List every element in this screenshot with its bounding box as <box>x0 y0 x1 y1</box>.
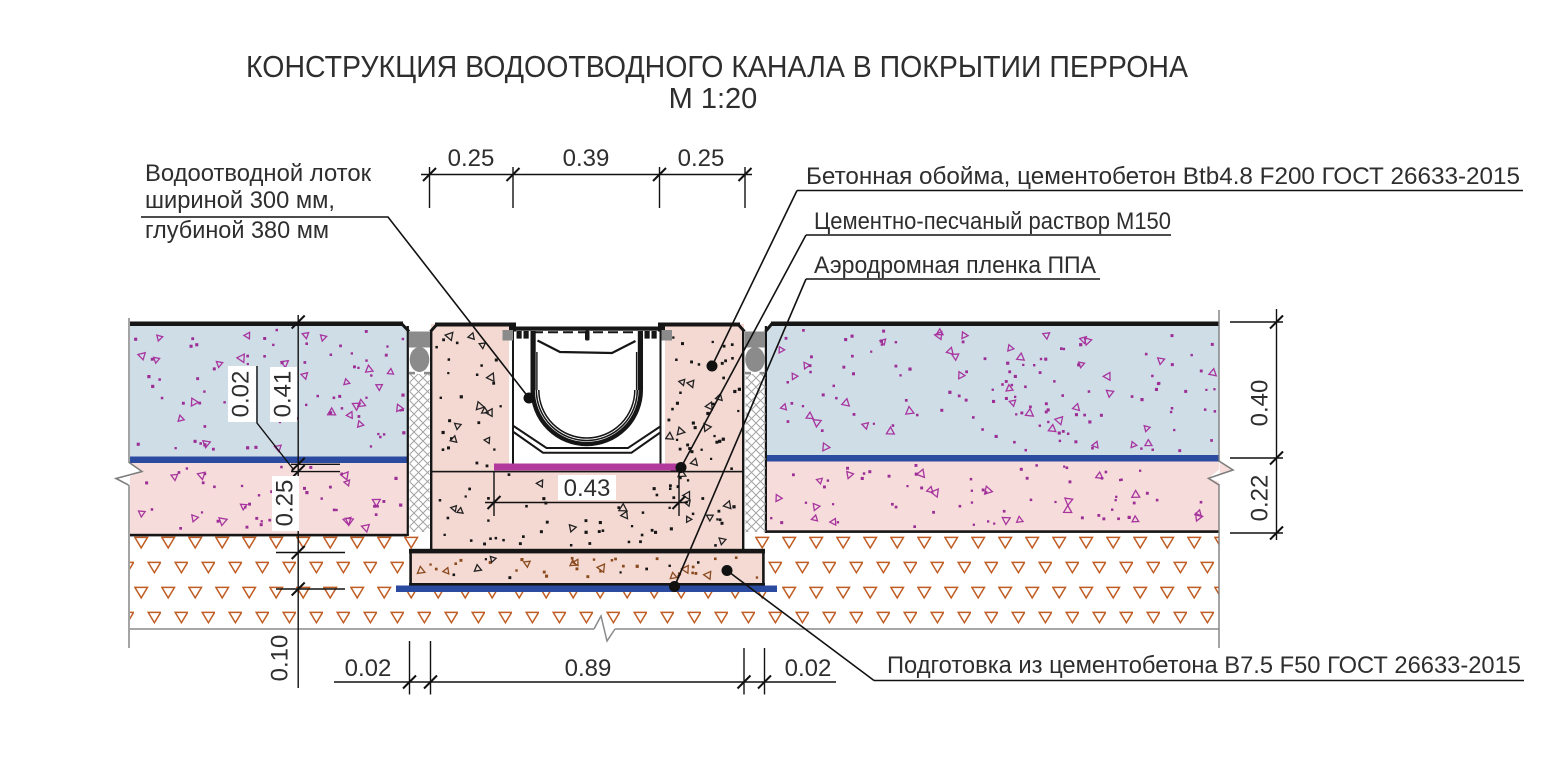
svg-text:Бетонная обойма, цементобетон: Бетонная обойма, цементобетон Btb4.8 F20… <box>806 163 1520 190</box>
svg-text:0.40: 0.40 <box>1246 380 1273 427</box>
svg-text:0.22: 0.22 <box>1246 475 1273 522</box>
svg-text:0.25: 0.25 <box>448 145 495 172</box>
svg-text:0.25: 0.25 <box>678 145 725 172</box>
svg-text:0.02: 0.02 <box>785 655 832 682</box>
svg-text:шириной 300 мм,: шириной 300 мм, <box>145 187 335 214</box>
svg-text:0.10: 0.10 <box>266 635 293 682</box>
svg-text:Подготовка из цементобетона В7: Подготовка из цементобетона В7.5 F50 ГОС… <box>887 652 1521 679</box>
svg-text:0.41: 0.41 <box>269 371 296 418</box>
svg-text:0.43: 0.43 <box>564 475 611 502</box>
svg-text:0.89: 0.89 <box>565 655 612 682</box>
svg-text:Аэродромная пленка ППА: Аэродромная пленка ППА <box>814 252 1096 279</box>
svg-text:0.39: 0.39 <box>563 145 610 172</box>
svg-text:Цементно-песчаный раствор М150: Цементно-песчаный раствор М150 <box>814 208 1171 235</box>
svg-text:0.02: 0.02 <box>345 655 392 682</box>
svg-text:Водоотводной лоток: Водоотводной лоток <box>145 160 371 187</box>
svg-text:М 1:20: М 1:20 <box>669 83 758 115</box>
svg-text:0.02: 0.02 <box>227 371 254 418</box>
svg-text:0.25: 0.25 <box>271 480 298 527</box>
svg-text:КОНСТРУКЦИЯ ВОДООТВОДНОГО КАНА: КОНСТРУКЦИЯ ВОДООТВОДНОГО КАНАЛА В ПОКРЫ… <box>246 49 1188 84</box>
svg-text:глубиной 380 мм: глубиной 380 мм <box>145 217 329 244</box>
